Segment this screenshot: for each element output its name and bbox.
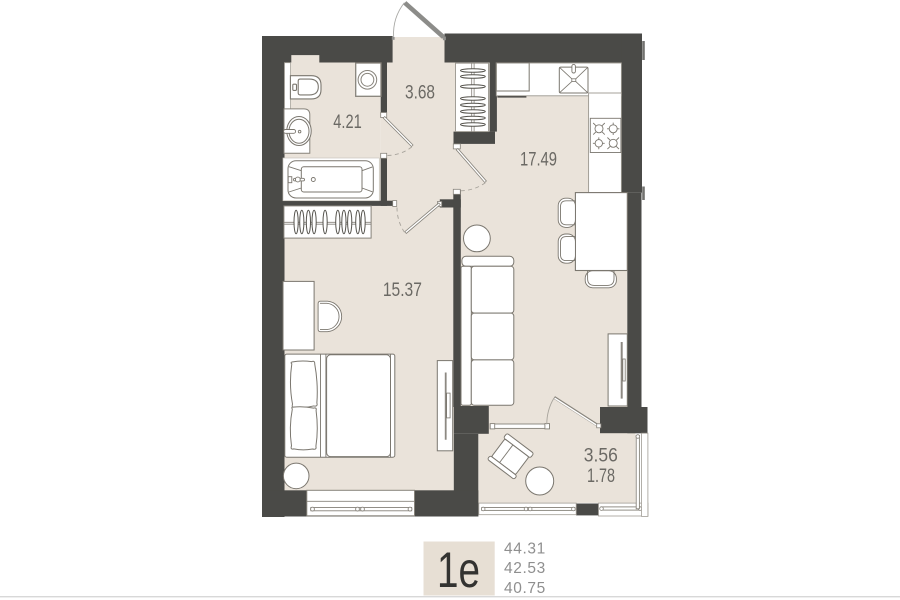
svg-text:15.37: 15.37 bbox=[383, 280, 422, 301]
svg-text:1е: 1е bbox=[437, 542, 480, 598]
svg-text:1.78: 1.78 bbox=[587, 466, 615, 487]
svg-text:3.68: 3.68 bbox=[405, 82, 435, 103]
svg-text:40.75: 40.75 bbox=[504, 580, 546, 597]
svg-text:44.31: 44.31 bbox=[504, 541, 546, 558]
svg-text:42.53: 42.53 bbox=[504, 560, 546, 577]
svg-text:4.21: 4.21 bbox=[333, 112, 362, 133]
svg-text:17.49: 17.49 bbox=[520, 150, 557, 171]
svg-text:3.56: 3.56 bbox=[584, 446, 618, 467]
